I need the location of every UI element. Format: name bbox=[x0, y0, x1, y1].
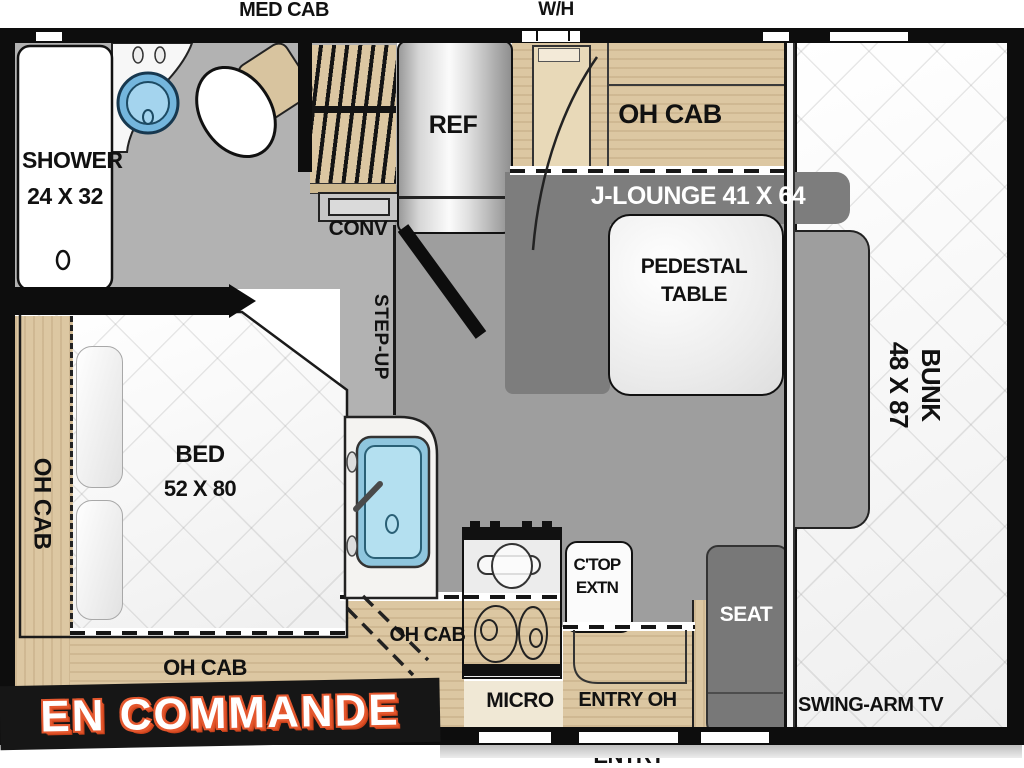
faucet-handle-icon bbox=[155, 47, 165, 63]
window bbox=[763, 31, 789, 42]
status-banner-text: EN COMMANDE bbox=[40, 686, 400, 743]
pedestal-line1: PEDESTAL bbox=[624, 256, 764, 278]
kitchen-sink-bowl-icon bbox=[365, 446, 421, 558]
burner-icon bbox=[519, 607, 547, 659]
label-shower: SHOWER 24 X 32 bbox=[22, 148, 108, 208]
wh-window-tick bbox=[568, 30, 570, 41]
label-bed: BED 52 X 80 bbox=[130, 442, 270, 500]
wall-left bbox=[0, 28, 15, 745]
label-ref: REF bbox=[425, 112, 481, 138]
label-wh: W/H bbox=[534, 0, 578, 20]
bed-line1: BED bbox=[130, 442, 270, 467]
bunk-line1: BUNK bbox=[917, 285, 944, 485]
wall-medcab bbox=[298, 37, 312, 172]
rv-floorplan: MED CAB W/H ENTRY SHOWER 24 X 32 REF CON… bbox=[0, 0, 1024, 768]
burner-icon bbox=[492, 544, 532, 588]
step-edge-line bbox=[393, 225, 396, 415]
fixtures-overlay bbox=[0, 0, 1024, 768]
wh-window-tick bbox=[536, 30, 538, 41]
label-micro: MICRO bbox=[478, 690, 562, 712]
shower-line1: SHOWER bbox=[22, 148, 108, 172]
wall-bath-divider bbox=[0, 287, 230, 315]
label-ctop-extn: C'TOP EXTN bbox=[567, 556, 627, 597]
label-bunk: BUNK 48 X 87 bbox=[880, 285, 944, 485]
bed-line2: 52 X 80 bbox=[130, 477, 270, 500]
status-banner: EN COMMANDE bbox=[0, 678, 441, 750]
bath-sink-bowl-icon bbox=[127, 82, 169, 124]
label-oh-cab-dinette: OH CAB bbox=[600, 100, 740, 128]
wall-right bbox=[1007, 28, 1024, 745]
closet-door-arc bbox=[533, 57, 597, 250]
label-step-up: STEP-UP bbox=[370, 277, 390, 397]
wall-bunk-divider bbox=[784, 43, 795, 727]
label-entry-oh: ENTRY OH bbox=[570, 690, 685, 711]
window bbox=[36, 31, 62, 42]
ctop-line1: C'TOP bbox=[567, 556, 627, 574]
burner-center-icon bbox=[481, 620, 497, 640]
plan-shadow bbox=[440, 745, 1022, 758]
burner-center-icon bbox=[530, 629, 542, 647]
label-med-cab: MED CAB bbox=[238, 0, 330, 21]
window bbox=[479, 731, 551, 744]
window bbox=[830, 31, 908, 42]
faucet-handle-icon bbox=[347, 452, 357, 472]
bunk-line2: 48 X 87 bbox=[884, 285, 911, 485]
faucet-handle-icon bbox=[133, 47, 143, 63]
label-oh-cab-left: OH CAB bbox=[29, 429, 54, 579]
bathroom-door bbox=[403, 228, 481, 335]
ctop-line2: EXTN bbox=[567, 579, 627, 597]
window bbox=[701, 731, 769, 744]
label-seat: SEAT bbox=[712, 604, 780, 626]
faucet-handle-icon bbox=[347, 536, 357, 556]
entry-oh-door-line bbox=[574, 630, 686, 683]
label-swing-arm-tv: SWING-ARM TV bbox=[798, 695, 948, 716]
pedestal-line2: TABLE bbox=[624, 284, 764, 306]
label-conv: CONV bbox=[320, 218, 396, 240]
label-oh-cab-foot: OH CAB bbox=[160, 656, 250, 679]
label-pedestal-table: PEDESTAL TABLE bbox=[624, 256, 764, 306]
shower-line2: 24 X 32 bbox=[22, 184, 108, 208]
wh-window bbox=[522, 30, 580, 43]
label-j-lounge: J-LOUNGE 41 X 64 bbox=[548, 183, 848, 209]
label-oh-cab-kitchen: OH CAB bbox=[385, 625, 470, 646]
